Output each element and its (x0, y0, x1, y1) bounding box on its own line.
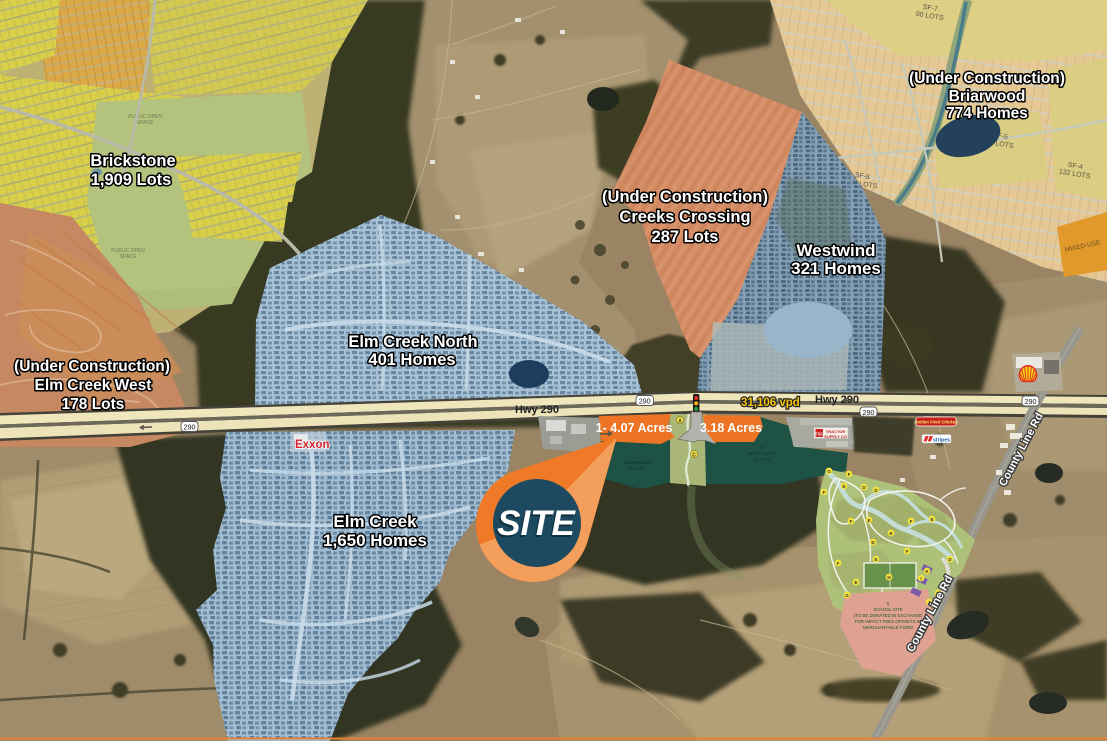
svg-text:10.65 AC: 10.65 AC (753, 457, 770, 462)
svg-text:TSC: TSC (815, 432, 825, 437)
svg-text:MULTI FAMILY: MULTI FAMILY (748, 451, 776, 456)
svg-text:MERCHANTABLE FORM: MERCHANTABLE FORM (863, 625, 913, 630)
svg-text:E: E (842, 484, 845, 489)
svg-text:C: C (692, 453, 696, 459)
svg-text:G: G (845, 593, 849, 598)
svg-text:SPACE: SPACE (120, 254, 137, 260)
svg-text:F: F (910, 519, 913, 524)
svg-text:SPACE: SPACE (137, 120, 154, 126)
svg-text:31,106 vpd: 31,106 vpd (741, 397, 800, 409)
svg-text:E: E (930, 517, 933, 522)
svg-text:Elm Creek North: Elm Creek North (348, 333, 477, 351)
svg-text:290: 290 (639, 396, 651, 405)
svg-text:290: 290 (1025, 397, 1037, 406)
svg-text:Briarwood: Briarwood (949, 88, 1026, 105)
svg-text:FOR IMPACT FEES OFFSETS IN: FOR IMPACT FEES OFFSETS IN (855, 619, 921, 624)
svg-text:3.18 Acres: 3.18 Acres (700, 421, 762, 435)
svg-text:F: F (848, 472, 851, 477)
svg-text:Elm Creek West: Elm Creek West (35, 377, 152, 394)
svg-text:Brickstone: Brickstone (90, 152, 175, 170)
svg-text:(TO BE DONATED IN EXCHANGE: (TO BE DONATED IN EXCHANGE (854, 613, 922, 618)
svg-text:Creeks Crossing: Creeks Crossing (619, 208, 750, 226)
svg-text:321 Homes: 321 Homes (791, 259, 881, 278)
svg-text:1,650 Homes: 1,650 Homes (323, 531, 427, 550)
svg-text:(Under Construction): (Under Construction) (909, 70, 1065, 87)
svg-text:F: F (823, 490, 826, 495)
svg-text:Golden Fried Chicken: Golden Fried Chicken (914, 419, 958, 424)
svg-text:(Under Construction): (Under Construction) (602, 188, 768, 206)
svg-text:Westwind: Westwind (796, 241, 875, 260)
svg-text:178 Lots: 178 Lots (62, 396, 125, 413)
svg-text:1,909 Lots: 1,909 Lots (91, 171, 172, 189)
svg-text:F: F (906, 549, 909, 554)
svg-text:SUPPLY CO: SUPPLY CO (824, 434, 847, 439)
svg-text:Elm Creek: Elm Creek (333, 512, 417, 531)
svg-text:E: E (889, 531, 892, 536)
svg-text:I: I (920, 576, 921, 581)
svg-text:E: E (854, 580, 857, 585)
svg-text:TOWNHOMES: TOWNHOMES (623, 460, 651, 465)
svg-text:290: 290 (863, 408, 875, 417)
svg-text:stripes: stripes (933, 437, 950, 443)
svg-text:A: A (678, 419, 682, 425)
svg-text:SCHOOL SITE: SCHOOL SITE (873, 607, 902, 612)
svg-text:(Under Construction): (Under Construction) (14, 358, 170, 375)
svg-text:Exxon: Exxon (295, 439, 330, 451)
svg-text:F: F (850, 519, 853, 524)
svg-text:1- 4.07 Acres: 1- 4.07 Acres (596, 421, 673, 435)
svg-text:290: 290 (184, 422, 196, 431)
svg-text:Hwy 290: Hwy 290 (515, 404, 559, 416)
svg-text:287 Lots: 287 Lots (652, 228, 719, 246)
svg-text:774 Homes: 774 Homes (946, 105, 1028, 122)
svg-text:E: E (874, 557, 877, 562)
svg-text:E: E (867, 518, 870, 523)
svg-text:F: F (837, 561, 840, 566)
svg-text:70.90 AC: 70.90 AC (628, 466, 645, 471)
svg-text:SITE: SITE (497, 504, 576, 543)
svg-text:G: G (827, 469, 831, 474)
svg-text:401 Homes: 401 Homes (368, 351, 455, 369)
